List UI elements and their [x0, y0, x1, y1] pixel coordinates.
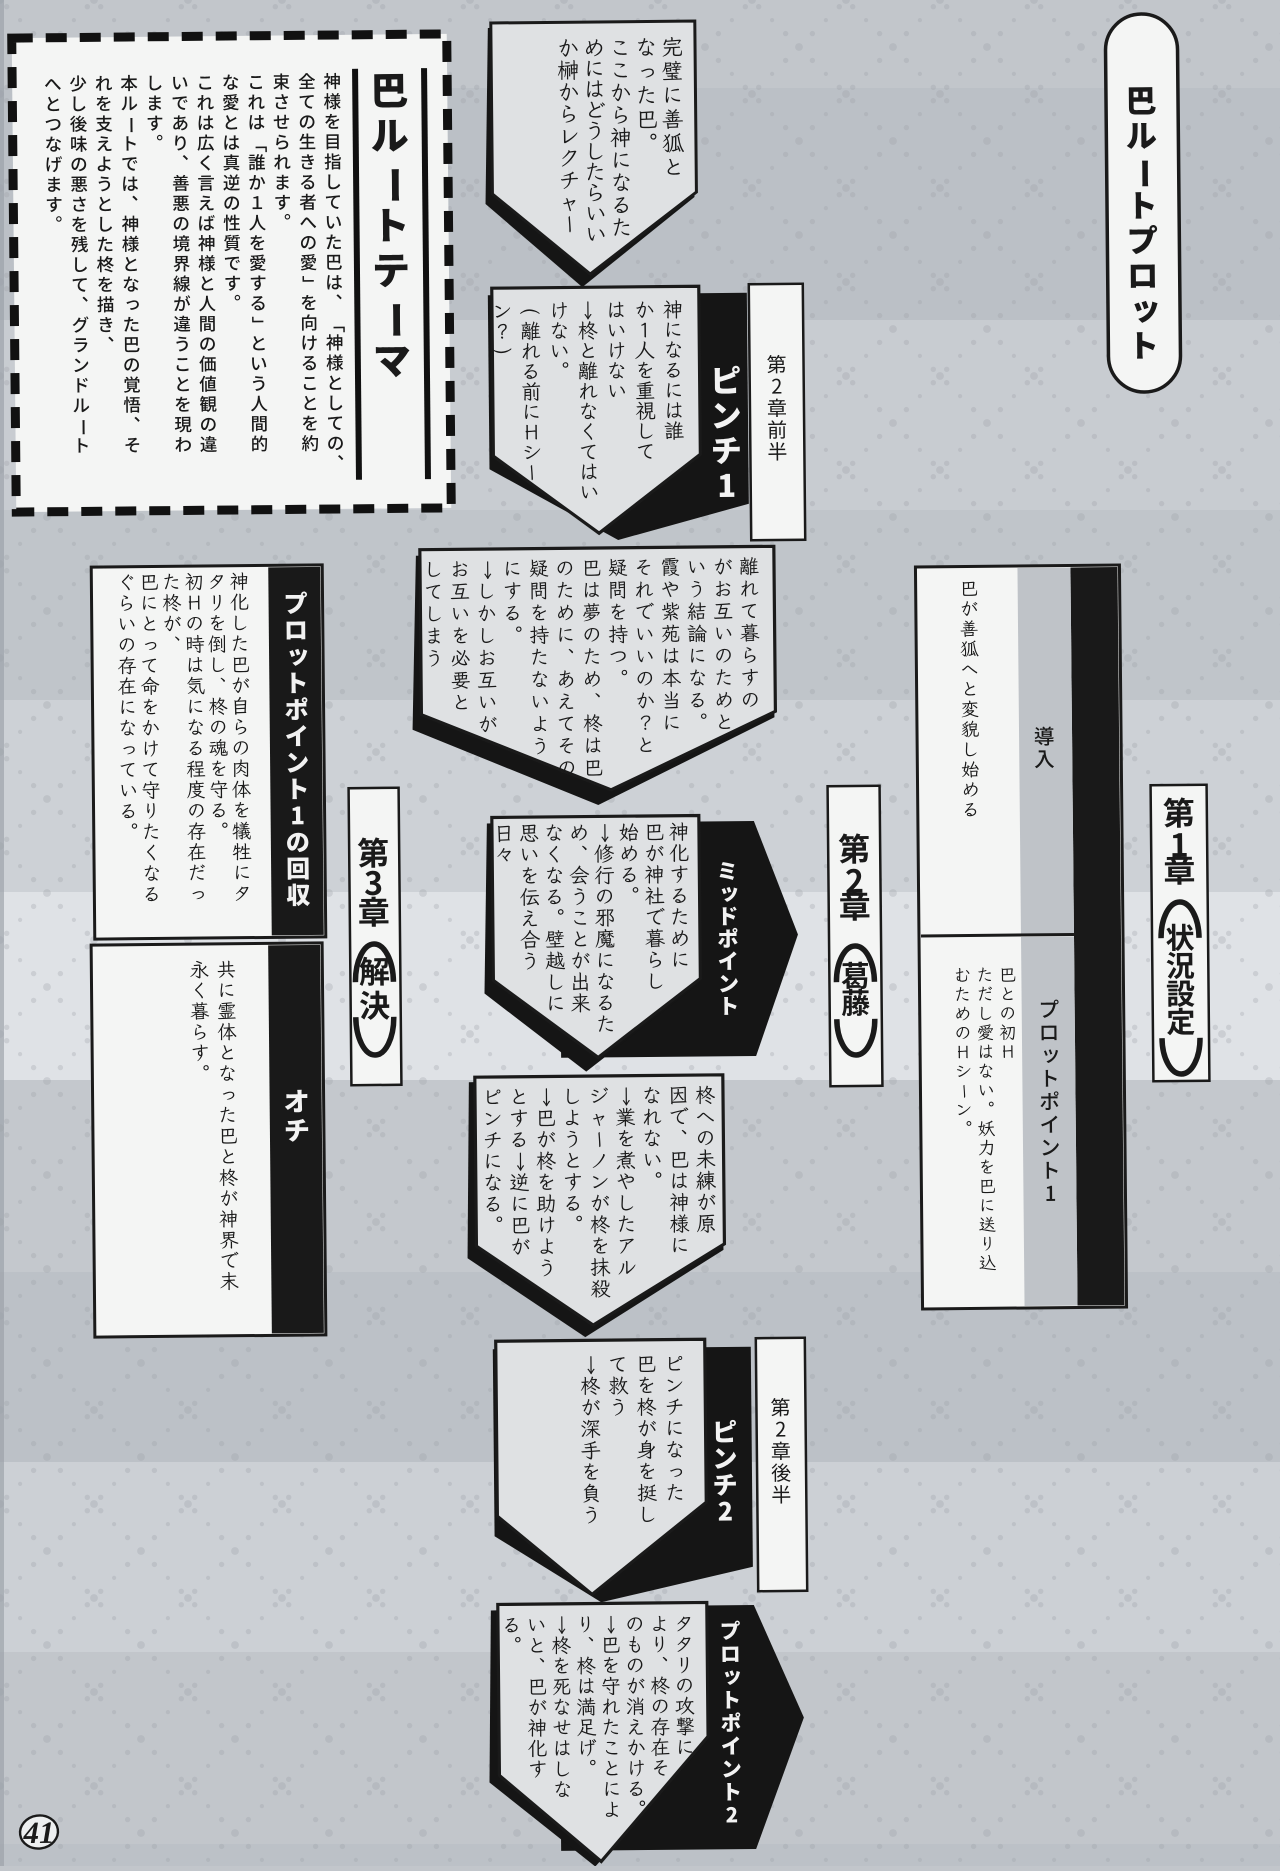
svg-text:41: 41	[22, 1815, 54, 1850]
